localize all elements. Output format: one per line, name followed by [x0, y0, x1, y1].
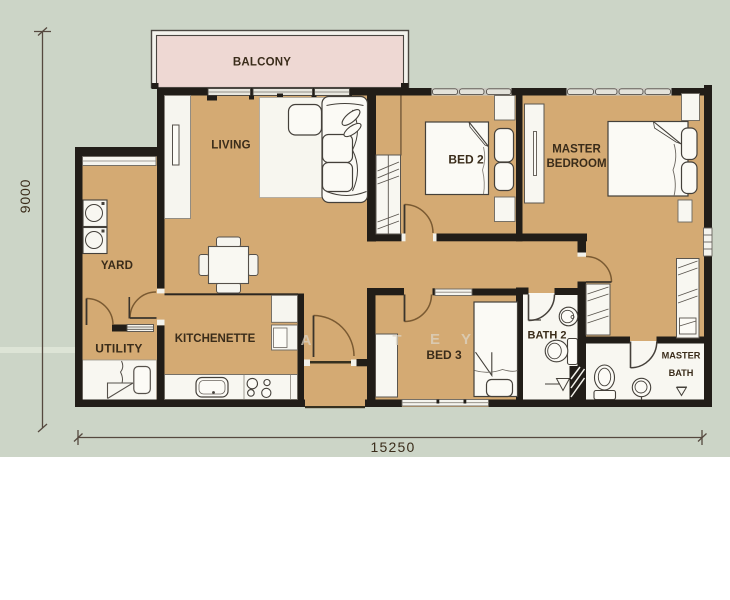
svg-text:BATH: BATH: [669, 368, 694, 378]
svg-text:LIVING: LIVING: [211, 140, 251, 152]
svg-text:15250: 15250: [371, 439, 416, 455]
svg-text:E: E: [430, 331, 440, 348]
svg-text:BEDROOM: BEDROOM: [546, 158, 606, 170]
svg-text:9000: 9000: [17, 179, 33, 213]
svg-text:BED 3: BED 3: [426, 348, 462, 362]
svg-text:MASTER: MASTER: [662, 351, 701, 361]
svg-text:UTILITY: UTILITY: [95, 342, 142, 356]
svg-text:BED 2: BED 2: [448, 153, 484, 167]
svg-text:MASTER: MASTER: [552, 144, 601, 156]
svg-text:BALCONY: BALCONY: [233, 57, 291, 69]
svg-text:YARD: YARD: [101, 260, 133, 272]
svg-text:T: T: [392, 332, 401, 349]
svg-text:BATH 2: BATH 2: [528, 330, 567, 342]
svg-text:Y: Y: [461, 331, 471, 348]
svg-text:KITCHENETTE: KITCHENETTE: [175, 333, 256, 345]
svg-text:A: A: [301, 332, 312, 349]
